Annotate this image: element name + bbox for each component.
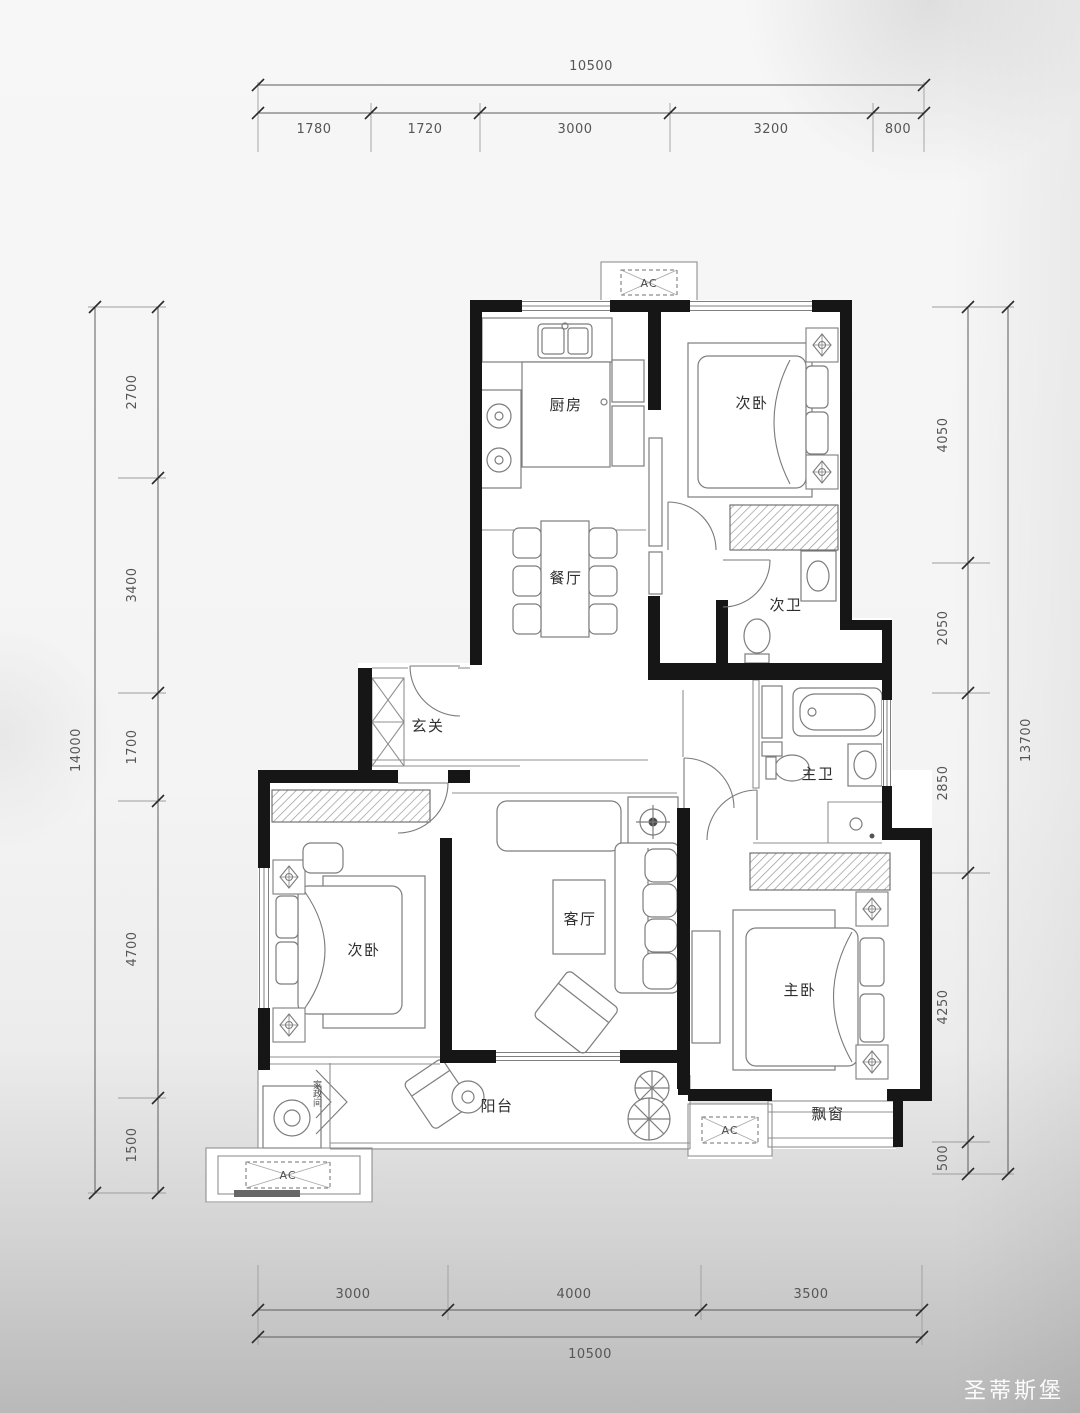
- dim-right-seg: 2050: [936, 610, 951, 645]
- vanity: [762, 686, 782, 756]
- kitchen-island: [522, 362, 610, 467]
- room-label-bedroom-top: 次卧: [735, 394, 768, 412]
- dimension-chain-bottom: 3000 4000 3500 10500: [252, 1265, 928, 1362]
- room-label-bedroom-master: 主卧: [783, 981, 816, 999]
- pillow: [806, 366, 828, 408]
- dim-top-seg: 3200: [753, 122, 788, 137]
- dimension-chain-left: 14000 2700 3400 1700 4700 1500: [69, 301, 166, 1199]
- dresser: [692, 931, 720, 1043]
- nightstand: [856, 1045, 888, 1079]
- dining-chair: [589, 528, 617, 558]
- ac-label: AC: [640, 277, 657, 290]
- nightstand: [856, 892, 888, 926]
- floorplan-drawing: AC AC AC: [0, 0, 1080, 1413]
- window: [690, 300, 812, 312]
- dim-top-total: 10500: [569, 59, 613, 74]
- nightstand: [273, 1008, 305, 1042]
- dim-left-seg: 1700: [125, 729, 140, 764]
- ceiling-light-symbol: [628, 797, 678, 847]
- wardrobe-bedroom-left: [272, 790, 430, 822]
- dining-chair: [513, 566, 541, 596]
- round-table: [452, 1081, 484, 1113]
- dim-top-seg: 800: [885, 122, 911, 137]
- dim-bottom-seg: 3500: [793, 1287, 828, 1302]
- watermark: 圣蒂斯堡: [964, 1373, 1064, 1405]
- dim-left-total: 14000: [69, 728, 84, 772]
- pillow: [276, 942, 298, 984]
- toilet: [744, 619, 770, 663]
- dim-left-seg: 4700: [125, 931, 140, 966]
- room-label-living: 客厅: [563, 910, 596, 928]
- bedroom-top-bed: [698, 356, 806, 488]
- kitchen-sink: [538, 323, 592, 358]
- pillow: [860, 938, 884, 986]
- dimension-chain-right: 4050 2050 2850 4250 500 13700: [932, 301, 1034, 1180]
- dim-right-seg: 2850: [936, 765, 951, 800]
- bathtub: [793, 688, 882, 736]
- wardrobe-bedroom-top: [730, 505, 838, 550]
- room-label-bath-secondary: 次卫: [769, 596, 802, 614]
- sofa: [615, 843, 679, 993]
- dim-left-seg: 3400: [125, 567, 140, 602]
- plant: [628, 1098, 670, 1140]
- nightstand: [273, 860, 305, 894]
- dim-bottom-total: 10500: [568, 1347, 612, 1362]
- ac-label: AC: [279, 1169, 296, 1182]
- window: [882, 700, 892, 786]
- dim-bottom-seg: 4000: [556, 1287, 591, 1302]
- dining-chair: [589, 604, 617, 634]
- window: [258, 868, 270, 1008]
- dim-bottom-seg: 3000: [335, 1287, 370, 1302]
- dim-right-total: 13700: [1019, 718, 1034, 762]
- kitchen-stove: [477, 390, 521, 488]
- dim-right-seg: 4250: [936, 989, 951, 1024]
- tv-stand: [497, 801, 621, 851]
- dining-chair: [513, 604, 541, 634]
- nightstand: [806, 328, 838, 362]
- pillow: [860, 994, 884, 1042]
- ac-label: AC: [721, 1124, 738, 1137]
- dimension-chain-top: 10500 1780 1720 3000 3200 800: [252, 59, 930, 152]
- room-label-balcony: 阳台: [480, 1097, 513, 1115]
- dining-chair: [513, 528, 541, 558]
- bathroom-sink: [801, 551, 836, 601]
- room-label-utility: 家政间: [311, 1079, 322, 1108]
- kitchen-fridge: [612, 360, 644, 466]
- pillow: [806, 412, 828, 454]
- room-label-bay-window: 飘窗: [811, 1105, 844, 1123]
- dining-chair: [589, 566, 617, 596]
- dim-left-seg: 2700: [125, 374, 140, 409]
- dim-top-seg: 1780: [296, 122, 331, 137]
- wardrobe-master: [750, 853, 890, 890]
- room-label-dining: 餐厅: [549, 569, 582, 587]
- bathroom-sink: [848, 744, 882, 786]
- dim-right-seg: 4050: [936, 417, 951, 452]
- dim-top-seg: 1720: [407, 122, 442, 137]
- room-label-entry: 玄关: [411, 717, 444, 735]
- nightstand: [806, 455, 838, 489]
- dim-left-seg: 1500: [125, 1127, 140, 1162]
- pillow: [276, 896, 298, 938]
- room-label-kitchen: 厨房: [549, 396, 582, 414]
- window: [522, 300, 610, 312]
- desk-chair: [303, 843, 343, 873]
- room-label-bath-master: 主卫: [801, 765, 834, 783]
- dim-right-seg: 500: [936, 1145, 951, 1171]
- room-label-bedroom-left: 次卧: [347, 941, 380, 959]
- dim-top-seg: 3000: [557, 122, 592, 137]
